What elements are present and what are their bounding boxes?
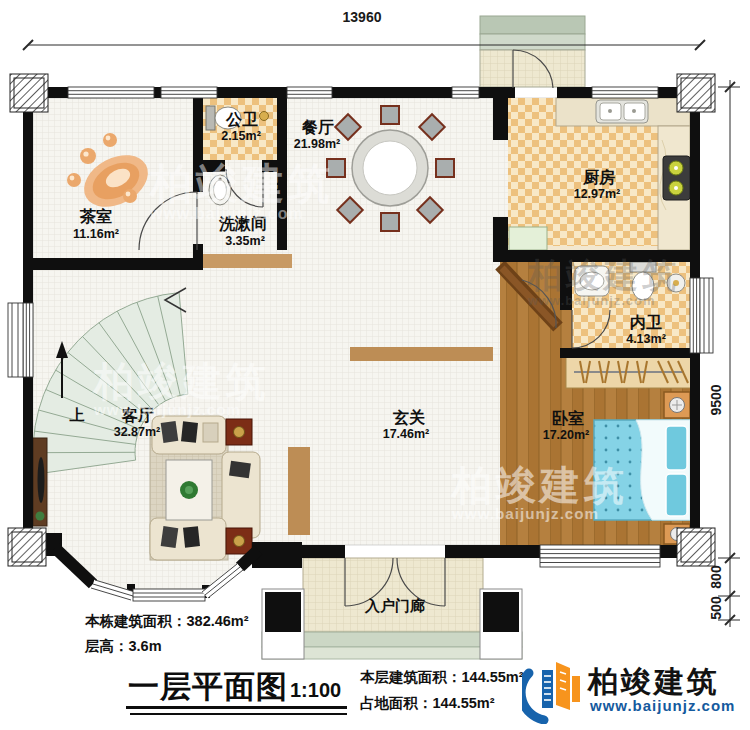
room-area-kitchen: 12.97m²: [574, 187, 621, 201]
room-name-public-bath: 公卫: [225, 111, 258, 128]
pillow: [666, 426, 687, 470]
plant: [36, 512, 45, 521]
floor-area-label: 本层建筑面积：144.55m²: [360, 668, 524, 687]
floor-drain: [260, 112, 269, 121]
brand-block: 柏竣建筑 www.baijunjz.com: [522, 656, 748, 728]
dimension-right-800: 800: [708, 565, 724, 589]
room-area-inner-bath: 4.13m²: [626, 332, 666, 346]
room-area-living: 32.87m²: [114, 425, 161, 439]
dimension-top: 13960: [343, 9, 382, 25]
toilet: [206, 106, 215, 130]
tv: [38, 457, 45, 503]
room-area-washroom: 3.35m²: [225, 234, 265, 248]
foyer-inlay-strip: [350, 347, 493, 361]
room-name-inner-bath: 内卫: [630, 314, 662, 331]
dimension-right-9500: 9500: [708, 384, 724, 415]
title-underline: [126, 706, 347, 709]
dimension-right-500: 500: [708, 596, 724, 620]
room-area-dining: 21.98m²: [294, 137, 341, 151]
room-area-bedroom: 17.20m²: [543, 428, 590, 442]
floor-plan-page: 13960 9500 800 500 茶室 11.16m² 公卫 2.15m² …: [0, 0, 750, 730]
title-underline-thin: [130, 713, 347, 715]
brand-logo-icon: [522, 656, 584, 724]
porch-column: [265, 592, 301, 632]
room-area-public-bath: 2.15m²: [221, 129, 261, 143]
room-name-washroom: 洗漱间: [218, 215, 267, 233]
foyer-inlay-strip: [288, 447, 310, 535]
room-name-tea-room: 茶室: [79, 207, 112, 225]
brand-url: www.baijunjz.com: [590, 697, 735, 714]
wardrobe: [566, 356, 692, 388]
drawing-scale: 1:100: [290, 679, 341, 702]
building-area-label: 本栋建筑面积：382.46m²: [85, 612, 249, 631]
room-name-kitchen: 厨房: [582, 168, 615, 186]
room-name-dining: 餐厅: [301, 119, 334, 136]
back-porch: [480, 16, 585, 87]
pillow: [666, 474, 687, 516]
stairs-up-label: 上: [69, 406, 85, 423]
room-area-foyer: 17.46m²: [383, 427, 430, 441]
footprint-area-label: 占地面积：144.55m²: [360, 694, 495, 713]
room-name-bedroom: 卧室: [552, 409, 584, 427]
toilet: [630, 262, 656, 272]
fridge: [509, 227, 547, 250]
foyer-inlay-strip: [203, 254, 292, 268]
room-name-foyer: 玄关: [392, 408, 425, 426]
room-area-tea-room: 11.16m²: [73, 227, 119, 241]
drawing-title: 一层平面图: [128, 666, 288, 708]
floor-height-label: 层高：3.6m: [85, 637, 162, 656]
room-name-living: 客厅: [121, 406, 154, 424]
porch-column: [483, 592, 519, 632]
room-name-entrance-porch: 入户门廊: [364, 597, 425, 614]
